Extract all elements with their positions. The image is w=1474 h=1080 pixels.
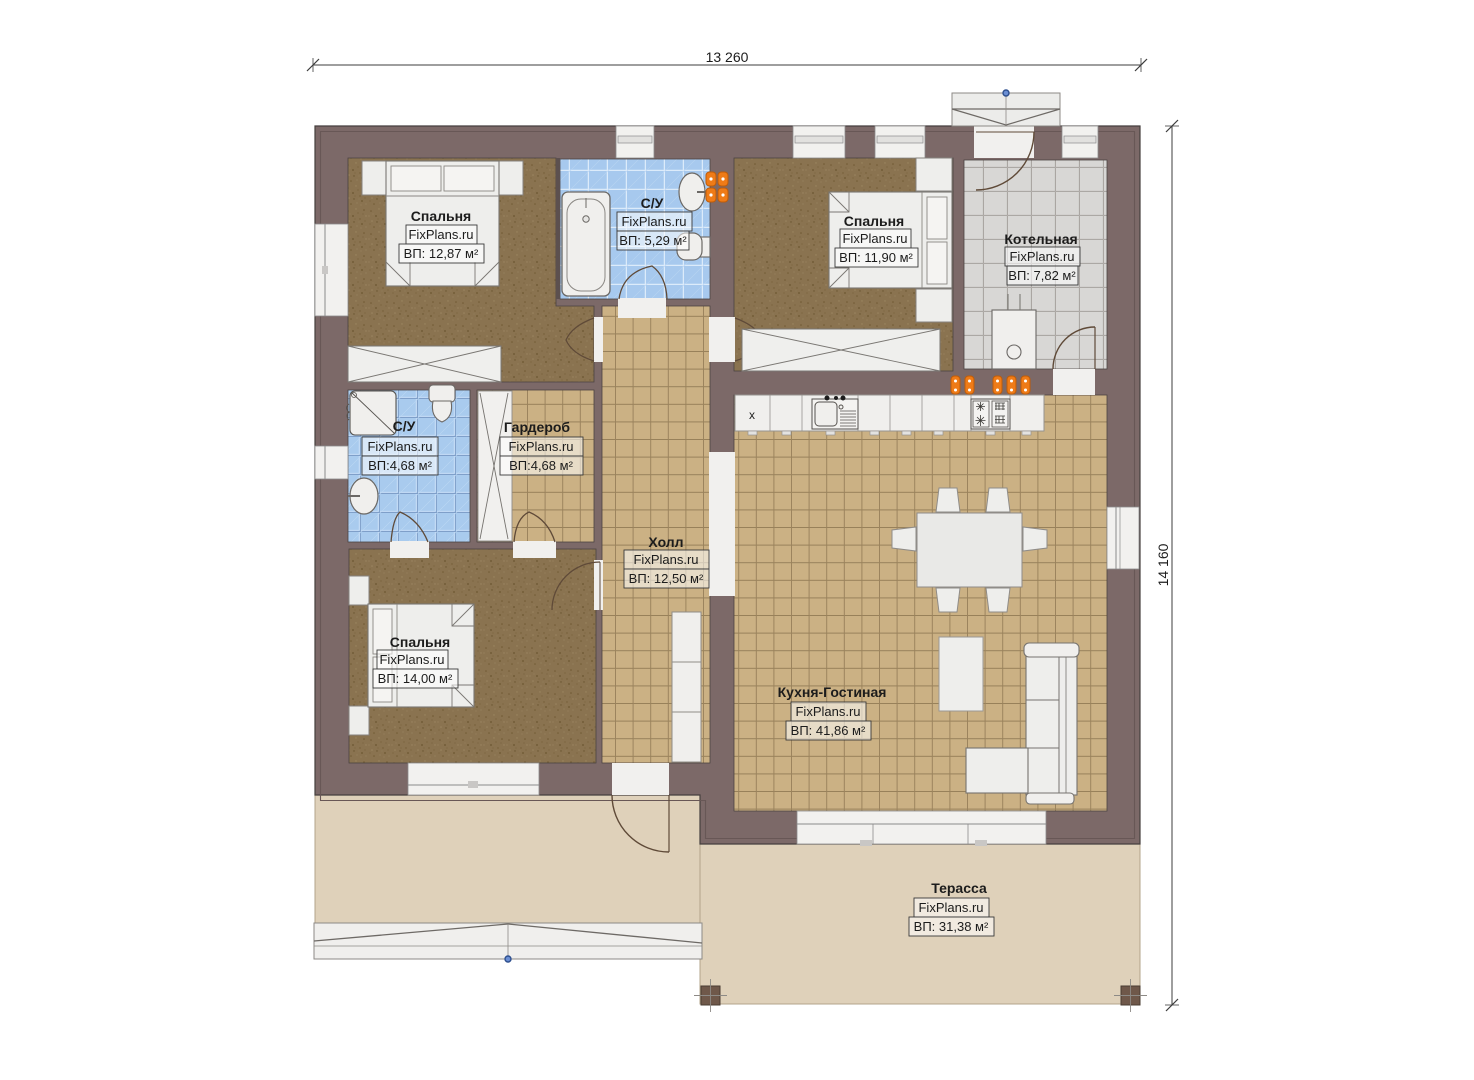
svg-text:С/У: С/У — [393, 418, 416, 434]
svg-text:С/У: С/У — [641, 195, 664, 211]
svg-text:14 160: 14 160 — [1155, 543, 1171, 586]
svg-text:Кухня-Гостиная: Кухня-Гостиная — [778, 684, 887, 700]
svg-text:Спальня: Спальня — [390, 634, 450, 650]
svg-text:FixPlans.ru: FixPlans.ru — [1009, 249, 1074, 264]
svg-text:13 260: 13 260 — [706, 49, 749, 65]
svg-text:FixPlans.ru: FixPlans.ru — [408, 227, 473, 242]
svg-text:ВП: 12,50 м²: ВП: 12,50 м² — [629, 571, 704, 586]
svg-text:ВП: 5,29 м²: ВП: 5,29 м² — [619, 233, 687, 248]
svg-text:ВП: 7,82 м²: ВП: 7,82 м² — [1008, 268, 1076, 283]
svg-text:FixPlans.ru: FixPlans.ru — [795, 704, 860, 719]
svg-text:FixPlans.ru: FixPlans.ru — [633, 552, 698, 567]
svg-text:Холл: Холл — [648, 534, 683, 550]
svg-text:ВП:4,68 м²: ВП:4,68 м² — [368, 458, 432, 473]
svg-text:ВП: 11,90 м²: ВП: 11,90 м² — [839, 250, 913, 265]
svg-text:Спальня: Спальня — [844, 213, 904, 229]
svg-text:FixPlans.ru: FixPlans.ru — [367, 439, 432, 454]
svg-text:Гардероб: Гардероб — [504, 419, 571, 435]
svg-text:ВП: 12,87 м²: ВП: 12,87 м² — [404, 246, 479, 261]
svg-text:ВП: 14,00 м²: ВП: 14,00 м² — [378, 671, 453, 686]
svg-text:ВП:4,68 м²: ВП:4,68 м² — [509, 458, 573, 473]
svg-text:ВП: 31,38 м²: ВП: 31,38 м² — [914, 919, 989, 934]
svg-text:FixPlans.ru: FixPlans.ru — [508, 439, 573, 454]
svg-text:FixPlans.ru: FixPlans.ru — [918, 900, 983, 915]
svg-text:FixPlans.ru: FixPlans.ru — [379, 652, 444, 667]
svg-text:x: x — [749, 408, 755, 422]
svg-text:Терасса: Терасса — [931, 880, 987, 896]
svg-text:FixPlans.ru: FixPlans.ru — [621, 214, 686, 229]
svg-text:ВП: 41,86 м²: ВП: 41,86 м² — [791, 723, 866, 738]
svg-text:FixPlans.ru: FixPlans.ru — [842, 231, 907, 246]
svg-text:Котельная: Котельная — [1004, 231, 1077, 247]
svg-text:Спальня: Спальня — [411, 208, 471, 224]
